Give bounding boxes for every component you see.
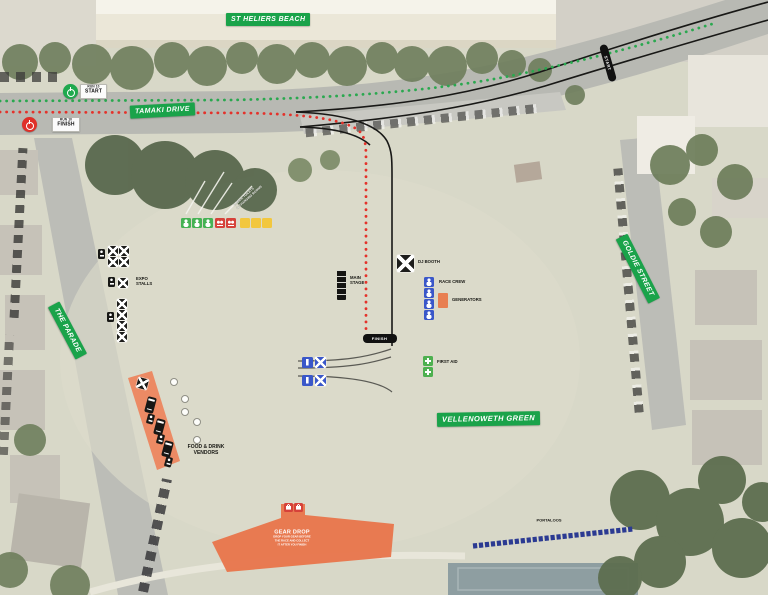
race-crew-label: RACE CREW	[439, 279, 465, 284]
expo-tent-icon	[117, 332, 127, 342]
main-stage-label: MAINSTAGE	[350, 275, 364, 285]
portaloos-label: PORTALOOS	[509, 518, 589, 523]
start-marker-box: RUN 10START	[80, 84, 107, 99]
event-site-map: ST HELIERS BEACH TAMAKI DRIVE THE PARADE…	[0, 0, 768, 595]
expo-tent-icon	[108, 246, 118, 256]
toilet-icon	[181, 218, 191, 228]
label-vellenoweth-green: VELLENOWETH GREEN	[437, 411, 540, 426]
expo-tent-icon	[117, 310, 127, 320]
bin-circle-icon	[181, 395, 189, 403]
bin-circle-icon	[193, 418, 201, 426]
vendor-cart-icon	[108, 277, 115, 287]
food-label-line1: FOOD & DRINK	[188, 444, 225, 450]
portaloos-row	[473, 529, 633, 546]
food-vendors-label: FOOD & DRINKVENDORS	[156, 444, 256, 456]
gear-bag-icon	[294, 503, 303, 512]
expo-tent-icon	[108, 257, 118, 267]
dj-booth-icon	[397, 255, 414, 272]
expo-tent-icon	[119, 257, 129, 267]
bin-circle-icon	[170, 378, 178, 386]
vendor-cart-icon	[107, 312, 114, 322]
bin-circle-icon	[193, 436, 201, 444]
dj-booth-label: DJ BOOTH	[418, 259, 440, 264]
gear-drop-text: GEAR DROP DROP YOUR GEAR BEFORE THE RACE…	[232, 529, 352, 547]
bin-circle-icon	[181, 408, 189, 416]
first-aid-icon	[423, 367, 433, 377]
main-stage-line2: STAGE	[350, 280, 364, 285]
toilet-icon	[203, 218, 213, 228]
race-crew-icon	[424, 277, 434, 287]
gear-note-line2: THE RACE AND COLLECT	[275, 539, 309, 542]
race-crew-icon	[424, 310, 434, 320]
timing-tent-icon	[315, 357, 326, 368]
coffee-cart-icon	[226, 218, 236, 228]
food-label-line2: VENDORS	[194, 450, 219, 456]
expo-label-line2: STALLS	[136, 281, 152, 286]
yellow-marker-icon	[240, 218, 250, 228]
gear-note-line3: IT AFTER YOU FINISH	[278, 543, 307, 546]
first-aid-icon	[423, 356, 433, 366]
race-crew-icon	[424, 299, 434, 309]
start-point-icon	[63, 84, 78, 99]
vendor-cart-icon	[98, 249, 105, 259]
legend-leader-lines	[186, 172, 252, 214]
finish-line-banner: FINISH	[363, 334, 397, 343]
expo-stalls-label: EXPOSTALLS	[136, 276, 152, 286]
generators-icon	[438, 293, 448, 308]
label-st-heliers-beach: ST HELIERS BEACH	[226, 13, 310, 26]
main-stage-icon	[337, 270, 346, 300]
toilet-icon	[192, 218, 202, 228]
timing-tent-icon	[315, 375, 326, 386]
yellow-marker-icon	[251, 218, 261, 228]
start-label: START	[81, 89, 106, 95]
yellow-marker-icon	[262, 218, 272, 228]
coffee-cart-icon	[215, 218, 225, 228]
expo-tent-icon	[117, 299, 127, 309]
finish-label: FINISH	[53, 122, 79, 128]
expo-tent-icon	[119, 246, 129, 256]
gear-bag-icon	[284, 503, 293, 512]
gear-note-line1: DROP YOUR GEAR BEFORE	[273, 536, 310, 539]
finish-line-text: FINISH	[372, 336, 388, 341]
expo-tent-icon	[118, 278, 128, 288]
timing-gate-icon	[302, 375, 313, 386]
gear-drop-title: GEAR DROP	[232, 529, 352, 535]
generators-label: GENERATORS	[452, 297, 482, 302]
timing-gate-icon	[302, 357, 313, 368]
finish-marker-box: RUN 10FINISH	[52, 117, 80, 132]
race-crew-icon	[424, 288, 434, 298]
finish-point-icon	[22, 117, 37, 132]
expo-tent-icon	[117, 321, 127, 331]
first-aid-label: FIRST AID	[437, 359, 458, 364]
